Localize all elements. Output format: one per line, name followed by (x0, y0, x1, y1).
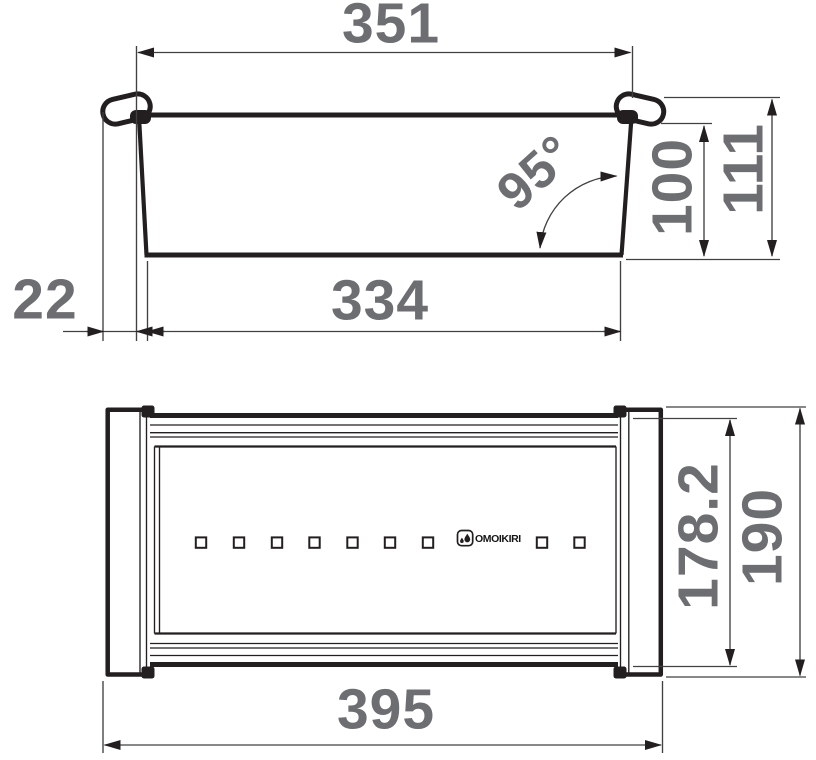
dim-label-inner-depth: 178.2 (671, 462, 728, 610)
plan-view-outline (104, 406, 664, 679)
dim-label-overall-height: 111 (716, 123, 773, 215)
dim-label-top-width: 351 (342, 0, 440, 53)
dim-label-overhang: 22 (12, 272, 77, 329)
dim-label-overall-width: 395 (337, 682, 435, 739)
side-view-tray-outline (100, 91, 666, 255)
dim-label-bottom-width: 334 (331, 273, 429, 330)
dim-label-inner-height: 100 (645, 138, 702, 236)
dim-label-overall-depth: 190 (735, 488, 792, 586)
omoikiri-logo-icon (458, 531, 473, 546)
tray-right-wall (622, 117, 632, 255)
omoikiri-logo-text: OMOIKIRI (475, 533, 521, 544)
technical-drawing-canvas: 351 22 334 95° 100 111 178.2 190 395 OMO… (0, 0, 816, 760)
drain-holes (196, 537, 585, 547)
tray-left-wall (139, 117, 147, 255)
drawing-linework (0, 0, 816, 760)
